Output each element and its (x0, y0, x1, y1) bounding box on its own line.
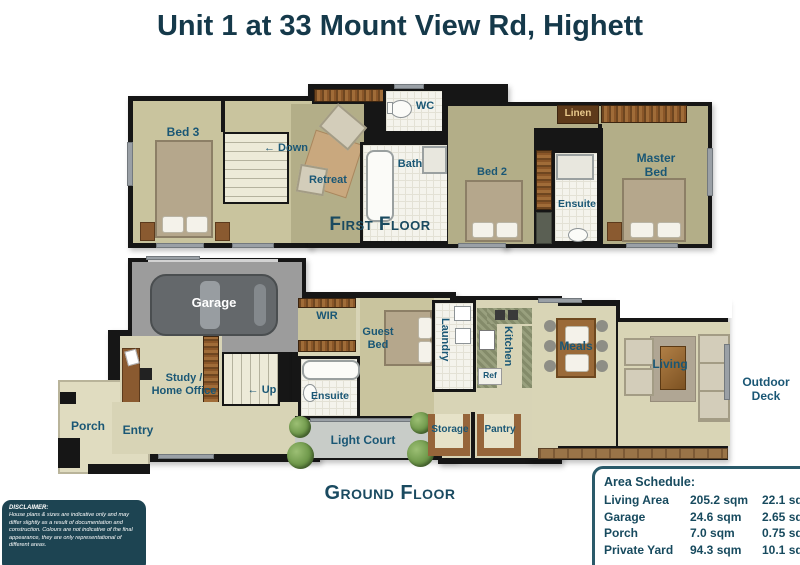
first-floor-caption: First Floor (322, 214, 438, 236)
area-sqm: 7.0 sqm (690, 525, 762, 542)
window (724, 344, 730, 400)
window (158, 454, 214, 459)
toilet (390, 100, 412, 118)
bedside-table (215, 222, 230, 241)
window (232, 243, 274, 248)
disclaimer-title: DISCLAIMER: (9, 505, 139, 511)
dining-chair (596, 320, 608, 332)
room-label-storage: Storage (426, 424, 474, 436)
room-label-bath: Bath (388, 158, 432, 171)
room-label-ensuite-gf: Ensuite (302, 390, 358, 402)
bathtub (302, 360, 360, 380)
room-label-bed3: Bed 3 (148, 126, 218, 140)
ensuite-shower (556, 154, 594, 180)
bed3-bed (155, 140, 213, 238)
window (127, 142, 133, 186)
tree (287, 442, 314, 469)
room-label-bed2: Bed 2 (461, 166, 523, 179)
room-label-retreat: Retreat (296, 174, 360, 187)
room-label-meals: Meals (546, 340, 606, 354)
room-label-wir: WIR (303, 310, 351, 323)
area-name: Private Yard (604, 542, 690, 559)
room-label-living: Living (640, 358, 700, 372)
dining-chair (544, 360, 556, 372)
area-sqm: 94.3 sqm (690, 542, 762, 559)
area-sq: 10.1 sq (762, 542, 800, 559)
room-label-garage: Garage (170, 296, 258, 311)
table-row: Private Yard 94.3 sqm 10.1 sq (604, 542, 800, 559)
room-label-ensuite-ff: Ensuite (551, 198, 603, 210)
area-sq: 2.65 sq (762, 509, 800, 526)
table-row: Living Area 205.2 sqm 22.1 sq (604, 492, 800, 509)
room-label-pantry: Pantry (478, 424, 522, 436)
ground-floor-caption: Ground Floor (312, 482, 468, 505)
window (310, 418, 414, 422)
room-label-up: ← Up (236, 384, 288, 397)
master-bed-bed (622, 178, 686, 242)
laundry-sink (454, 306, 471, 321)
dining-chair (544, 320, 556, 332)
toilet (568, 228, 588, 242)
disclaimer-body: House plans & sizes are indicative only … (9, 512, 139, 550)
stairs-up (222, 352, 280, 406)
bed2-bed (465, 180, 523, 242)
window (538, 298, 582, 303)
wall (221, 101, 225, 132)
area-sqm: 24.6 sqm (690, 509, 762, 526)
wir-shelf (298, 298, 356, 308)
washing-machine (455, 328, 471, 344)
ground-floor-plan: Garage Study /Home Office ← Up Porch Ent… (58, 252, 736, 480)
oven (508, 310, 518, 320)
area-name: Garage (604, 509, 690, 526)
porch-post (60, 392, 76, 404)
room-label-wc: WC (410, 100, 440, 113)
floor-plan-page: Unit 1 at 33 Mount View Rd, Highett (0, 0, 800, 565)
armchair (624, 368, 654, 396)
oven (495, 310, 505, 320)
bedside-table (140, 222, 155, 241)
down-arrow-icon: ← (264, 142, 275, 154)
room-label-laundry: Laundry (439, 318, 451, 361)
wall (598, 124, 602, 244)
window (146, 256, 200, 260)
master-robe (601, 105, 687, 123)
room-label-light-court: Light Court (310, 434, 416, 448)
porch-post (58, 438, 80, 468)
area-name: Living Area (604, 492, 690, 509)
area-schedule-box: Area Schedule: Living Area 205.2 sqm 22.… (592, 466, 800, 565)
table-row: Garage 24.6 sqm 2.65 sq (604, 509, 800, 526)
area-name: Porch (604, 525, 690, 542)
page-title: Unit 1 at 33 Mount View Rd, Highett (0, 10, 800, 43)
room-label-linen: Linen (557, 108, 599, 120)
bedside-table (607, 222, 622, 241)
area-schedule-title: Area Schedule: (604, 475, 800, 489)
cooktop (479, 330, 495, 350)
toilet-tank (387, 102, 393, 114)
room-label-kitchen: Kitchen (502, 326, 514, 366)
table-row: Porch 7.0 sqm 0.75 sq (604, 525, 800, 542)
room-label-master: MasterBed (623, 152, 689, 180)
vanity (536, 212, 552, 244)
deck-boards (538, 448, 728, 459)
disclaimer-box: DISCLAIMER: House plans & sizes are indi… (2, 500, 146, 565)
window (626, 243, 678, 248)
window (156, 243, 204, 248)
area-sqm: 205.2 sqm (690, 492, 762, 509)
bed2-robe (536, 150, 552, 210)
room-label-study: Study /Home Office (142, 372, 226, 397)
room-label-guest: GuestBed (352, 326, 404, 351)
dining-chair (596, 360, 608, 372)
window (707, 148, 713, 196)
wir-shelf (298, 340, 356, 352)
up-arrow-icon: ← (248, 384, 259, 396)
window (458, 243, 506, 248)
area-sq: 22.1 sq (762, 492, 800, 509)
room-label-down: ← Down (258, 142, 314, 155)
tree (289, 416, 311, 438)
room-label-entry: Entry (106, 424, 170, 438)
window (394, 84, 424, 89)
porch-post (88, 464, 150, 474)
area-sq: 0.75 sq (762, 525, 800, 542)
roof-notch (616, 292, 732, 318)
outdoor-deck-label: Outdoor Deck (735, 376, 797, 404)
room-label-ref: Ref (478, 371, 502, 381)
